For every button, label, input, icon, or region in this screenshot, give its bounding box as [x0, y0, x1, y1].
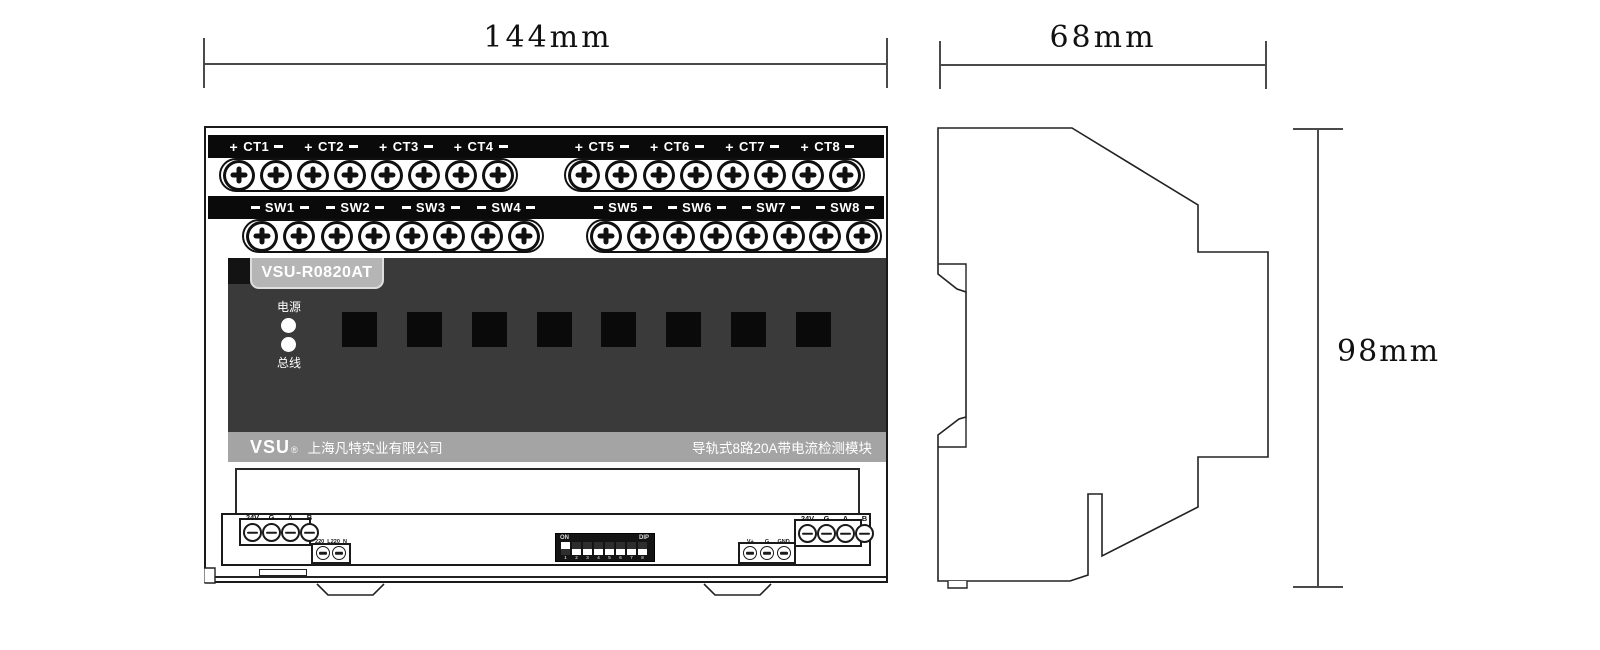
- slot-screw: [332, 546, 346, 560]
- channel-name: SW5: [608, 200, 638, 215]
- screw-terminal: [663, 221, 695, 252]
- slot-screw: [798, 524, 817, 543]
- ct-channel-label: +CT7: [725, 139, 779, 154]
- display-window-row: [342, 312, 831, 347]
- plus-sign: +: [801, 140, 810, 154]
- dip-number: 1: [561, 556, 570, 561]
- minus-sign: [643, 206, 652, 210]
- panel-corner-block: [228, 258, 250, 284]
- dip-switch-position: [627, 542, 636, 555]
- display-window: [796, 312, 831, 347]
- channel-name: CT6: [664, 139, 690, 154]
- terminal-label: A: [843, 515, 848, 523]
- screw-terminal: [792, 160, 824, 191]
- front-foot-right: [704, 584, 771, 595]
- channel-name: SW1: [265, 200, 295, 215]
- minus-sign: [865, 206, 874, 210]
- slot-screw: [836, 524, 855, 543]
- terminal-label: V+: [747, 539, 754, 545]
- terminal-cell: A: [836, 515, 855, 543]
- minus-sign: [451, 206, 460, 210]
- terminal-cell: G: [760, 539, 774, 560]
- dip-number: 5: [605, 556, 614, 561]
- dip-switch-position: [561, 542, 570, 555]
- terminal-label: 220_N: [331, 539, 347, 545]
- screw-terminal: [471, 221, 503, 252]
- power-terminal-left: 24VGAB: [239, 518, 311, 546]
- terminal-label: 24V: [246, 514, 259, 522]
- aux-terminal: V+GGND: [738, 542, 796, 564]
- dip-switch-position: [616, 542, 625, 555]
- case-seam-line: [235, 468, 237, 513]
- sw-channel-label: SW5: [594, 200, 652, 215]
- minus-sign: [791, 206, 800, 210]
- bottom-band-line: [206, 576, 886, 578]
- screw-terminal: [605, 160, 637, 191]
- sw-terminal-bar: SW1SW2SW3SW4 SW5SW6SW7SW8: [208, 196, 884, 219]
- terminal-label: B: [307, 514, 312, 522]
- minus-sign: [375, 206, 384, 210]
- screw-terminal: [717, 160, 749, 191]
- screw-terminal: [627, 221, 659, 252]
- display-window: [537, 312, 572, 347]
- dip-number: 6: [616, 556, 625, 561]
- din-clip-upper-detail: [938, 264, 966, 292]
- brand-left: VSU ® 上海凡特实业有限公司: [250, 437, 443, 458]
- dip-number-row: 12345678: [561, 556, 647, 561]
- sw-channel-label: SW6: [668, 200, 726, 215]
- screw-terminal: [321, 221, 353, 252]
- plus-sign: +: [575, 140, 584, 154]
- channel-name: SW6: [682, 200, 712, 215]
- minus-sign: [424, 145, 433, 149]
- screw-terminal: [246, 221, 278, 252]
- dip-number: 2: [572, 556, 581, 561]
- dim-height-label: 98mm: [1337, 334, 1440, 369]
- slot-screw: [316, 546, 330, 560]
- screw-terminal: [680, 160, 712, 191]
- ct-terminal-bar: +CT1+CT2+CT3+CT4 +CT5+CT6+CT7+CT8: [208, 135, 884, 158]
- dip-knob: [561, 542, 570, 549]
- terminal-label: B: [862, 515, 867, 523]
- bottom-tab: [259, 569, 307, 576]
- display-window: [731, 312, 766, 347]
- power-led: [281, 318, 296, 333]
- minus-sign: [717, 206, 726, 210]
- minus-sign: [499, 145, 508, 149]
- channel-name: CT1: [243, 139, 269, 154]
- ct-channel-label: +CT1: [230, 139, 284, 154]
- ct-screw-strip-1: [219, 158, 518, 192]
- terminal-label: G: [269, 514, 275, 522]
- channel-name: CT4: [467, 139, 493, 154]
- channel-name: SW4: [491, 200, 521, 215]
- ct-label-group-1: +CT1+CT2+CT3+CT4: [219, 135, 518, 158]
- channel-name: SW8: [830, 200, 860, 215]
- dip-switch-position: [583, 542, 592, 555]
- screw-terminal: [568, 160, 600, 191]
- sw-channel-label: SW4: [477, 200, 535, 215]
- terminal-cell: 220_N: [331, 539, 347, 560]
- screw-terminal: [408, 160, 440, 191]
- plus-sign: +: [454, 140, 463, 154]
- channel-name: SW2: [340, 200, 370, 215]
- case-seam-line: [235, 468, 860, 470]
- dip-number: 4: [594, 556, 603, 561]
- minus-sign: [668, 206, 677, 210]
- sw-channel-label: SW2: [326, 200, 384, 215]
- dim-front-width-label: 144mm: [398, 20, 698, 55]
- front-view: +CT1+CT2+CT3+CT4 +CT5+CT6+CT7+CT8 SW1SW2…: [204, 126, 888, 583]
- terminal-cell: B: [855, 515, 874, 543]
- dip-switch-row: [561, 542, 647, 555]
- screw-terminal: [371, 160, 403, 191]
- slot-screw: [777, 546, 791, 560]
- minus-sign: [526, 206, 535, 210]
- screw-terminal: [297, 160, 329, 191]
- minus-sign: [300, 206, 309, 210]
- minus-sign: [816, 206, 825, 210]
- display-window: [472, 312, 507, 347]
- screw-terminal: [846, 221, 878, 252]
- minus-sign: [695, 145, 704, 149]
- display-window: [342, 312, 377, 347]
- ct-channel-label: +CT4: [454, 139, 508, 154]
- plus-sign: +: [725, 140, 734, 154]
- dim-side-width-label: 68mm: [953, 20, 1253, 55]
- channel-name: CT3: [393, 139, 419, 154]
- screw-terminal: [358, 221, 390, 252]
- terminal-cell: 24V: [798, 515, 817, 543]
- screw-terminal: [334, 160, 366, 191]
- ac-terminal: 220_L220_N: [311, 543, 351, 564]
- terminal-label: GND: [778, 539, 790, 545]
- front-panel: VSU-R0820AT 电源 总线 VSU ® 上海凡特实业有限公司 导轨式8路…: [228, 258, 886, 462]
- screw-terminal: [433, 221, 465, 252]
- terminal-label: A: [288, 514, 293, 522]
- screw-terminal: [809, 221, 841, 252]
- dip-switch-position: [594, 542, 603, 555]
- channel-name: CT7: [739, 139, 765, 154]
- terminal-label: G: [824, 515, 830, 523]
- registered-mark: ®: [291, 445, 298, 455]
- power-led-label: 电源: [268, 298, 310, 315]
- dim-line: [940, 64, 1266, 66]
- terminal-cell: 24V: [243, 514, 262, 542]
- slot-screw: [243, 523, 262, 542]
- screw-terminal: [260, 160, 292, 191]
- terminal-cell: A: [281, 514, 300, 542]
- sw-channel-label: SW3: [402, 200, 460, 215]
- sw-screw-strip-2: [586, 219, 882, 253]
- product-name: 导轨式8路20A带电流检测模块: [692, 437, 872, 457]
- sw-label-group-1: SW1SW2SW3SW4: [242, 196, 544, 219]
- bus-led-label: 总线: [268, 354, 310, 371]
- ct-channel-label: +CT5: [575, 139, 629, 154]
- terminal-cell: G: [262, 514, 281, 542]
- slot-screw: [281, 523, 300, 542]
- channel-name: SW7: [756, 200, 786, 215]
- sw-channel-label: SW1: [251, 200, 309, 215]
- display-window: [666, 312, 701, 347]
- slot-screw: [743, 546, 757, 560]
- channel-name: CT5: [588, 139, 614, 154]
- slot-screw: [817, 524, 836, 543]
- minus-sign: [251, 206, 260, 210]
- ct-label-group-2: +CT5+CT6+CT7+CT8: [564, 135, 865, 158]
- vsu-logo: VSU: [250, 437, 290, 458]
- channel-name: CT8: [814, 139, 840, 154]
- model-text: VSU-R0820AT: [261, 264, 372, 282]
- front-foot-left: [317, 584, 384, 595]
- minus-sign: [326, 206, 335, 210]
- terminal-cell: GND: [777, 539, 791, 560]
- display-window: [601, 312, 636, 347]
- plus-sign: +: [650, 140, 659, 154]
- screw-terminal: [223, 160, 255, 191]
- screw-terminal: [590, 221, 622, 252]
- minus-sign: [477, 206, 486, 210]
- screw-terminal: [482, 160, 514, 191]
- ct-channel-label: +CT8: [801, 139, 855, 154]
- side-foot: [948, 581, 967, 588]
- dip-switch-position: [572, 542, 581, 555]
- brand-bar: VSU ® 上海凡特实业有限公司 导轨式8路20A带电流检测模块: [228, 432, 886, 462]
- screw-terminal: [283, 221, 315, 252]
- bus-led: [281, 337, 296, 352]
- plus-sign: +: [304, 140, 313, 154]
- minus-sign: [845, 145, 854, 149]
- minus-sign: [770, 145, 779, 149]
- ct-screw-strip-2: [564, 158, 865, 192]
- dip-number: 8: [638, 556, 647, 561]
- dim-line: [1317, 128, 1319, 587]
- terminal-cell: G: [817, 515, 836, 543]
- plus-sign: +: [379, 140, 388, 154]
- screw-terminal: [754, 160, 786, 191]
- minus-sign: [594, 206, 603, 210]
- sw-screw-strip-1: [242, 219, 544, 253]
- company-name: 上海凡特实业有限公司: [308, 437, 443, 457]
- side-view-outline: [938, 128, 1268, 581]
- terminal-cell: B: [300, 514, 319, 542]
- terminal-label: 220_L: [315, 539, 331, 545]
- terminal-label: G: [765, 539, 769, 545]
- screw-terminal: [396, 221, 428, 252]
- model-label: VSU-R0820AT: [250, 258, 384, 289]
- bottom-terminal-section: 24VGAB 220_L220_N ON DIP 12345678 V+GGND…: [221, 513, 871, 566]
- channel-name: SW3: [416, 200, 446, 215]
- minus-sign: [620, 145, 629, 149]
- screw-terminal: [736, 221, 768, 252]
- dip-switch-position: [638, 542, 647, 555]
- screw-terminal: [508, 221, 540, 252]
- sw-channel-label: SW8: [816, 200, 874, 215]
- slot-screw: [760, 546, 774, 560]
- ct-channel-label: +CT6: [650, 139, 704, 154]
- dip-number: 7: [627, 556, 636, 561]
- dip-number: 3: [583, 556, 592, 561]
- minus-sign: [349, 145, 358, 149]
- dip-switch-position: [605, 542, 614, 555]
- channel-name: CT2: [318, 139, 344, 154]
- minus-sign: [742, 206, 751, 210]
- din-clip-lower-detail: [938, 417, 966, 447]
- dip-on-label: ON: [560, 535, 569, 541]
- plus-sign: +: [230, 140, 239, 154]
- display-window: [407, 312, 442, 347]
- power-terminal-right: 24VGAB: [794, 519, 862, 547]
- screw-terminal: [773, 221, 805, 252]
- minus-sign: [274, 145, 283, 149]
- dip-label: DIP: [639, 535, 649, 541]
- screw-terminal: [829, 160, 861, 191]
- terminal-label: 24V: [801, 515, 814, 523]
- terminal-cell: V+: [743, 539, 757, 560]
- sw-channel-label: SW7: [742, 200, 800, 215]
- minus-sign: [402, 206, 411, 210]
- ct-channel-label: +CT3: [379, 139, 433, 154]
- screw-terminal: [700, 221, 732, 252]
- case-seam-line: [858, 468, 860, 513]
- terminal-cell: 220_L: [315, 539, 331, 560]
- dip-switch: ON DIP 12345678: [555, 533, 655, 562]
- sw-label-group-2: SW5SW6SW7SW8: [586, 196, 882, 219]
- screw-terminal: [445, 160, 477, 191]
- slot-screw: [855, 524, 874, 543]
- ct-channel-label: +CT2: [304, 139, 358, 154]
- screw-terminal: [643, 160, 675, 191]
- dim-line: [204, 63, 887, 65]
- slot-screw: [262, 523, 281, 542]
- technical-drawing: 144mm 68mm 98mm +CT1+CT2+CT3+CT4 +CT5+CT…: [0, 0, 1600, 650]
